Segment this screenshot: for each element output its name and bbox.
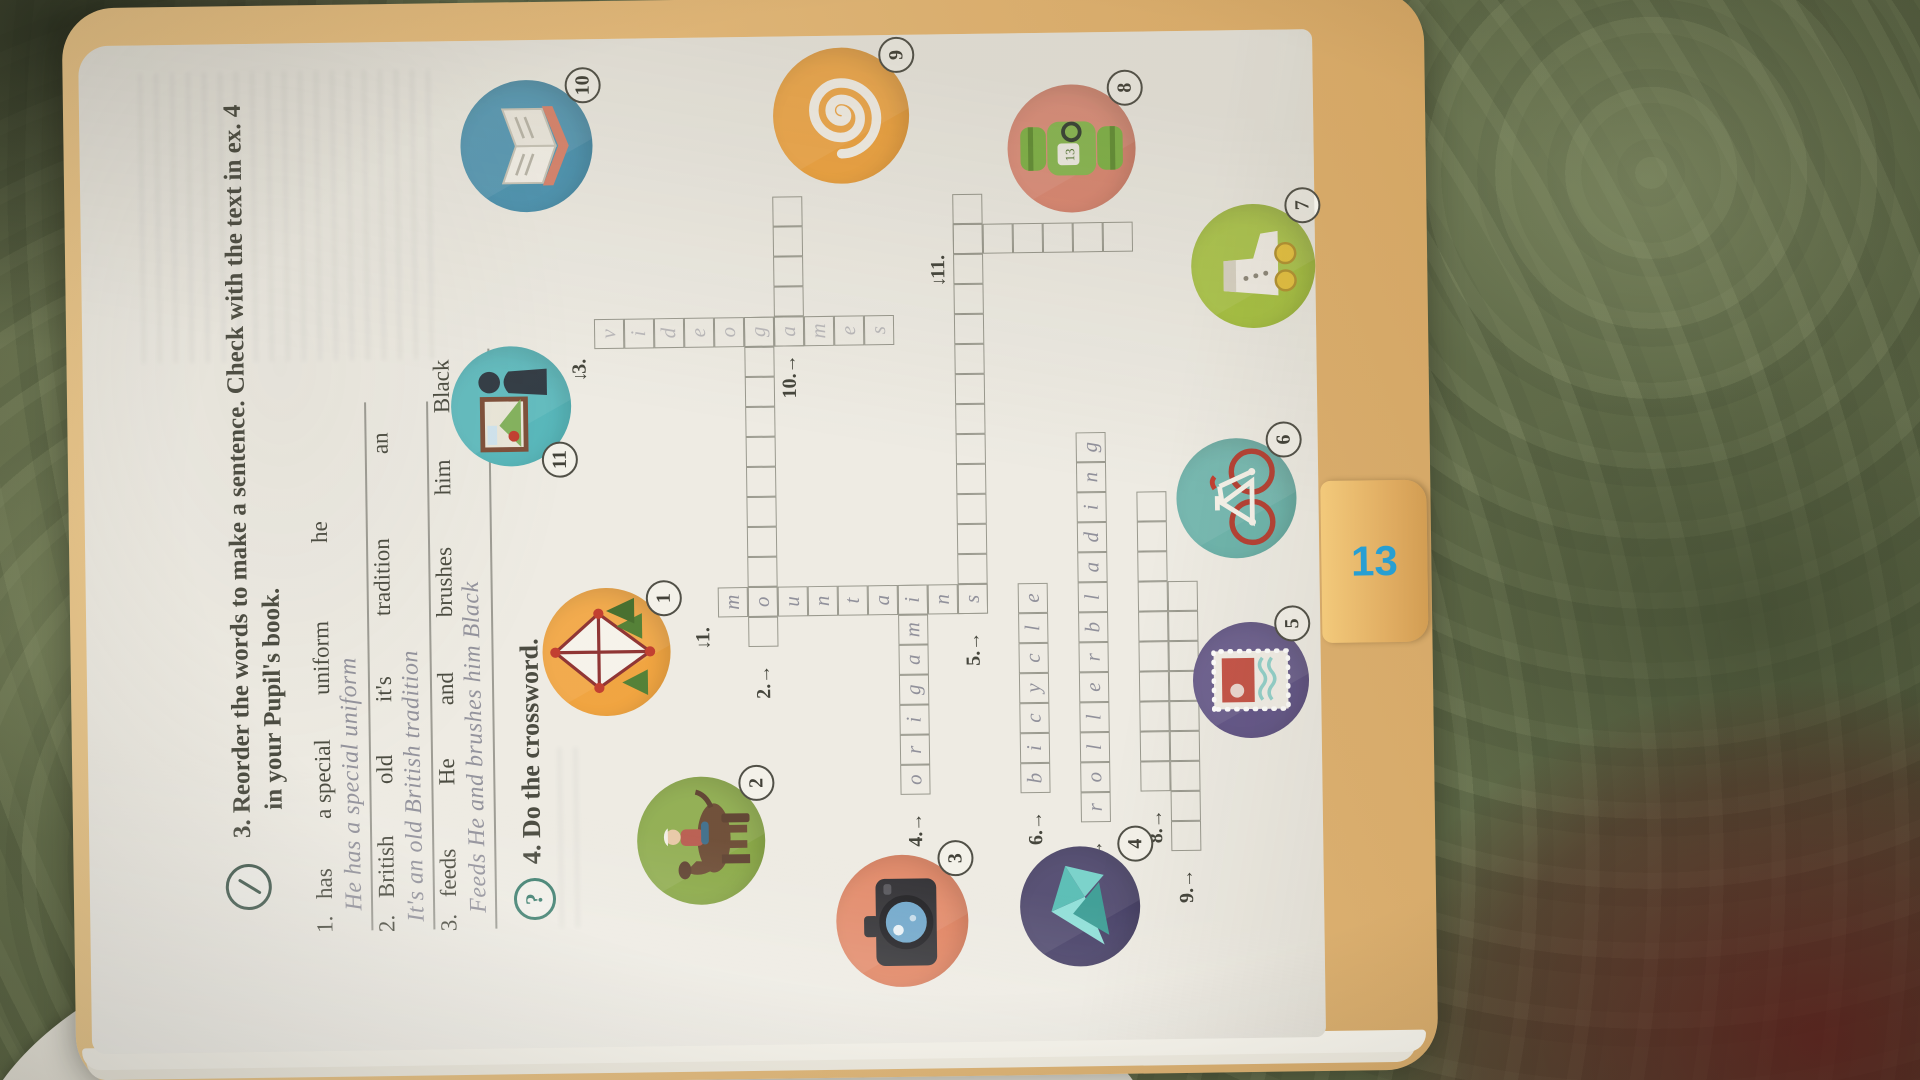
handwritten-answer-3: Feeds He and brushes him Black xyxy=(458,581,493,913)
crossword-cell xyxy=(957,554,987,584)
clue-label: 9.→ xyxy=(1176,871,1199,903)
crossword-cell: i xyxy=(1020,733,1050,763)
crossword-cell xyxy=(1139,701,1169,731)
hobby-icons: 1 2 3 4 5 6 xyxy=(78,46,92,1054)
crossword-cell: a xyxy=(1077,552,1107,582)
crossword-grid: mountains↓1.2.→videogames↓3.origam4.→5.→… xyxy=(78,46,92,1054)
crossword-cell: g xyxy=(899,675,929,705)
word-bank-item: has xyxy=(312,868,338,899)
crossword-cell xyxy=(958,584,988,614)
exercise4-activity-badge: ? xyxy=(514,878,557,921)
icon-number-badge: 8 xyxy=(1106,69,1142,105)
crossword-cell: g xyxy=(1076,432,1106,462)
crossword-cell: g xyxy=(744,317,774,347)
clue-label: 6.→ xyxy=(1025,813,1048,845)
crossword-cell: m xyxy=(898,615,928,645)
crossword-cell: i xyxy=(624,318,654,348)
crossword-cell xyxy=(1140,731,1170,761)
crossword-cell xyxy=(1043,222,1073,252)
word-bank-item: it's xyxy=(371,676,397,702)
exercise3-activity-badge xyxy=(225,864,272,911)
crossword-cell: e xyxy=(684,317,714,347)
crossword-cell xyxy=(953,254,983,284)
crossword-cell: l xyxy=(1079,702,1109,732)
crossword-cell: u xyxy=(778,586,808,616)
crossword-cell: e xyxy=(1018,583,1048,613)
clue-label: 5.→ xyxy=(962,634,985,666)
word-bank-item: brushes xyxy=(431,547,458,618)
workbook: 3. Reorder the words to make a sentence.… xyxy=(62,0,1439,1080)
crossword-cell xyxy=(746,467,776,497)
icon-number-badge: 1 xyxy=(646,580,682,616)
crossword-cell: i xyxy=(899,705,929,735)
crossword-cell: d xyxy=(1077,522,1107,552)
crossword-cell xyxy=(956,494,986,524)
word-bank-item: feeds xyxy=(435,849,462,898)
crossword-cell: v xyxy=(594,319,624,349)
crossword-cell: s xyxy=(864,315,894,345)
crossword-cell: l xyxy=(1080,732,1110,762)
crossword-cell: t xyxy=(838,585,868,615)
crossword-cell: i xyxy=(1076,492,1106,522)
row-number: 1. xyxy=(312,916,338,934)
word-bank-item: old xyxy=(372,755,398,785)
print-showthrough xyxy=(138,69,442,363)
crossword-cell xyxy=(1138,611,1168,641)
crossword-cell: o xyxy=(1080,762,1110,792)
crossword-cell: n xyxy=(1076,462,1106,492)
word-bank-item: an xyxy=(367,432,393,454)
word-bank-item: a special xyxy=(310,739,337,819)
clue-label: ↓11. xyxy=(927,255,950,287)
crossword-cell xyxy=(954,314,984,344)
crossword-cell: n xyxy=(808,586,838,616)
crossword-cell xyxy=(748,587,778,617)
crossword-cell xyxy=(774,316,804,346)
crossword-cell xyxy=(746,497,776,527)
crossword-cell xyxy=(1140,761,1170,791)
icon-number-badge: 4 xyxy=(1117,825,1153,861)
word-bank-item: he xyxy=(307,521,333,543)
exercise3-title-line1: 3. Reorder the words to make a sentence.… xyxy=(219,105,257,839)
crossword-cell xyxy=(1137,521,1167,551)
crossword-cell xyxy=(1139,671,1169,701)
crossword-cell xyxy=(955,404,985,434)
crossword-cell xyxy=(1138,641,1168,671)
exercise3-title-line2: in your Pupil's book. xyxy=(258,588,289,810)
print-showthrough xyxy=(558,747,591,927)
handwritten-answer-2: It's an old British tradition xyxy=(397,650,431,922)
exercise3-rows: 1.hasa specialuniformhe2.Britisholdit'st… xyxy=(78,46,92,1054)
crossword-cell: m xyxy=(718,587,748,617)
crossword-cell: d xyxy=(654,318,684,348)
crossword-cell: a xyxy=(868,585,898,615)
origami-bird-icon xyxy=(1019,846,1141,968)
icon-number-badge: 11 xyxy=(542,441,578,477)
crossword-cell xyxy=(1137,551,1167,581)
crossword-cell xyxy=(952,194,982,224)
crossword-cell xyxy=(1168,581,1198,611)
word-bank-item: and xyxy=(433,672,459,706)
icon-number-badge: 10 xyxy=(564,67,600,103)
icon-number-badge: 3 xyxy=(937,840,973,876)
crossword-cell xyxy=(1136,491,1166,521)
crossword-cell xyxy=(898,585,928,615)
crossword-cell: a xyxy=(898,645,928,675)
icon-number-badge: 6 xyxy=(1265,421,1301,457)
clue-label: 10.→ xyxy=(778,356,802,398)
crossword-cell: b xyxy=(1020,763,1050,793)
crossword-cell: r xyxy=(900,735,930,765)
word-bank-item: tradition xyxy=(369,538,396,616)
page-number: 13 xyxy=(1351,537,1398,586)
crossword-cell xyxy=(746,437,776,467)
crossword-cell xyxy=(1171,791,1201,821)
word-bank-item: British xyxy=(373,835,400,898)
crossword-cell xyxy=(955,374,985,404)
crossword-cell xyxy=(953,284,983,314)
crossword-cell xyxy=(956,464,986,494)
word-bank-item: uniform xyxy=(308,621,335,695)
clue-label: ↓3. xyxy=(568,359,591,382)
photo-background: 3. Reorder the words to make a sentence.… xyxy=(0,0,1920,1080)
crossword-cell xyxy=(745,407,775,437)
icon-number-badge: 9 xyxy=(878,37,914,73)
icon-number-badge: 7 xyxy=(1284,187,1320,223)
clue-label: ↓1. xyxy=(692,627,715,650)
crossword-cell: l xyxy=(1078,582,1108,612)
clue-label: 2.→ xyxy=(753,667,776,699)
pencil-icon xyxy=(238,879,262,895)
crossword-cell xyxy=(773,286,803,316)
crossword-cell: r xyxy=(1078,642,1108,672)
crossword-cell: m xyxy=(804,316,834,346)
crossword-cell: y xyxy=(1019,673,1049,703)
svg-text:13: 13 xyxy=(1063,148,1077,161)
crossword-cell xyxy=(772,196,802,226)
crossword-cell xyxy=(747,527,777,557)
crossword-cell: o xyxy=(900,765,930,795)
crossword-cell: b xyxy=(1078,612,1108,642)
crossword-cell xyxy=(954,344,984,374)
crossword-cell: o xyxy=(714,317,744,347)
crossword-cell xyxy=(983,223,1013,253)
word-bank-item: He xyxy=(434,758,460,785)
crossword-cell: l xyxy=(1018,613,1048,643)
crossword-cell xyxy=(1171,821,1201,851)
crossword-cell xyxy=(1073,222,1103,252)
crossword-cell xyxy=(744,347,774,377)
crossword-cell xyxy=(748,617,778,647)
question-mark-icon: ? xyxy=(522,893,549,905)
clue-label: 4.→ xyxy=(905,815,928,847)
row-number: 2. xyxy=(374,915,400,933)
crossword-cell xyxy=(956,434,986,464)
crossword-cell xyxy=(1170,761,1200,791)
crossword-cell: r xyxy=(1081,792,1111,822)
crossword-cell xyxy=(1103,222,1133,252)
crossword-cell xyxy=(1013,223,1043,253)
origami-bird-icon-art xyxy=(1019,846,1141,968)
crossword-cell xyxy=(1138,581,1168,611)
page-number-tab: 13 xyxy=(1320,480,1428,643)
crossword-cell xyxy=(773,256,803,286)
crossword-cell xyxy=(953,224,983,254)
workbook-page: 3. Reorder the words to make a sentence.… xyxy=(78,29,1326,1054)
crossword-cell xyxy=(745,377,775,407)
icon-number-badge: 2 xyxy=(738,765,774,801)
handwritten-answer-1: He has a special uniform xyxy=(335,657,368,911)
crossword-cell: c xyxy=(1018,643,1048,673)
crossword-cell xyxy=(747,557,777,587)
crossword-cell: n xyxy=(928,584,958,614)
row-number: 3. xyxy=(436,914,462,932)
crossword-cell xyxy=(773,226,803,256)
crossword-cell: e xyxy=(1079,672,1109,702)
crossword-cell: e xyxy=(834,315,864,345)
crossword-cell: c xyxy=(1019,703,1049,733)
crossword-cell xyxy=(957,524,987,554)
